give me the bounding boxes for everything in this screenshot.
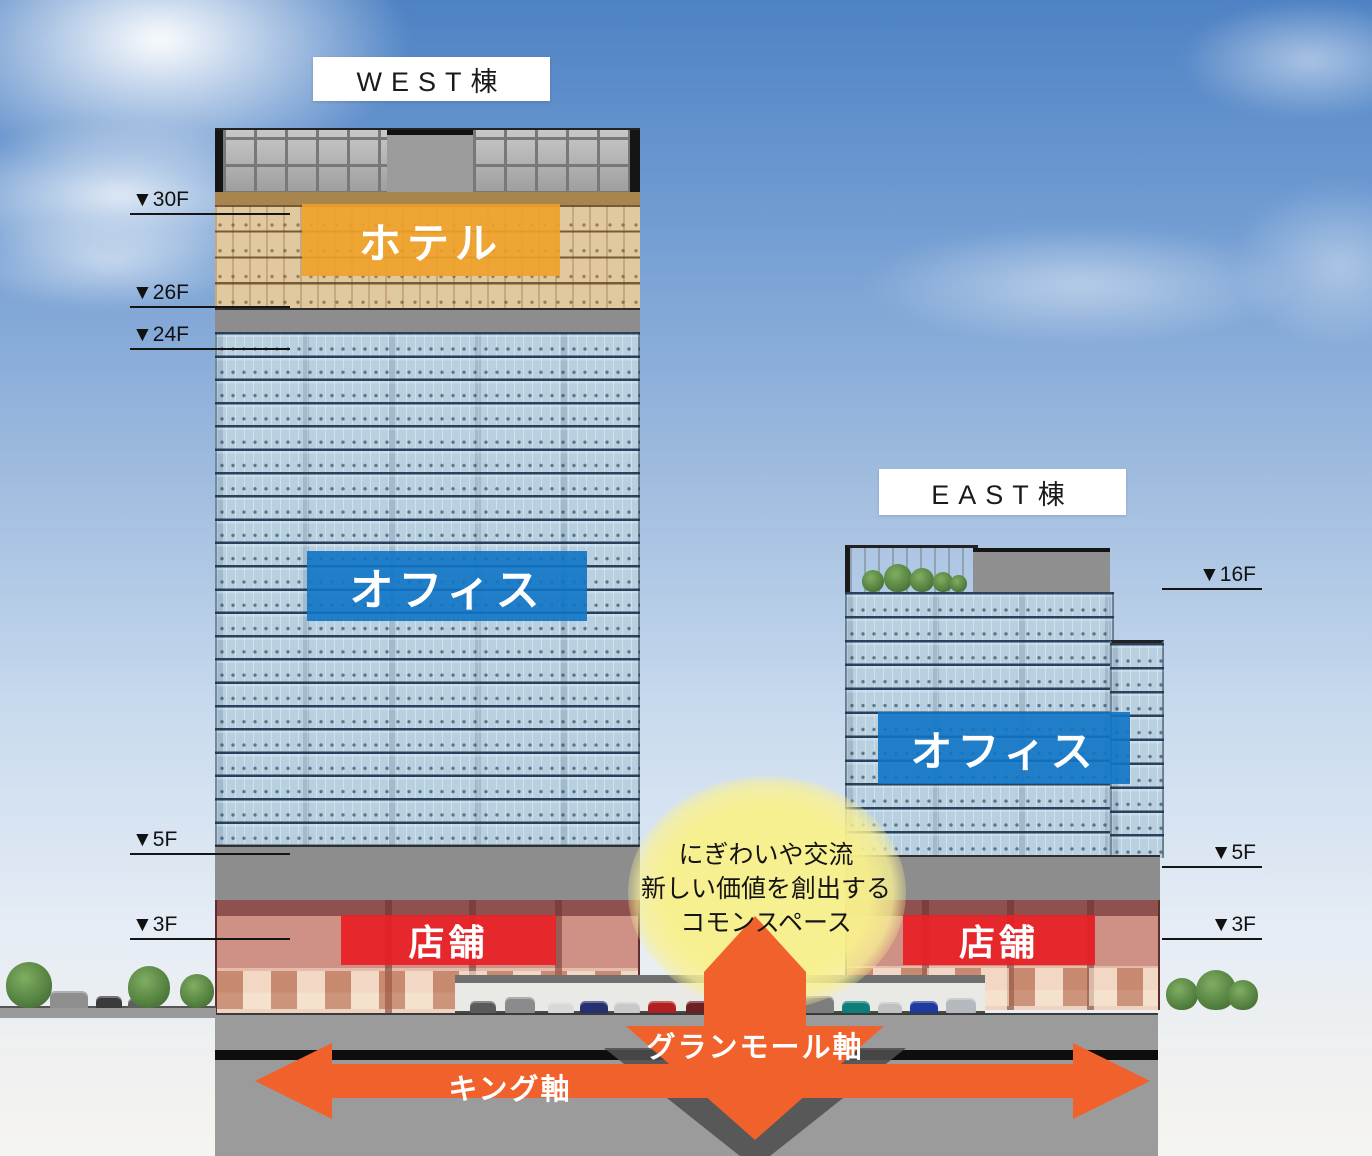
tree xyxy=(128,966,170,1008)
tree xyxy=(910,568,934,592)
west-mechanical-penthouse xyxy=(215,128,640,194)
cloud xyxy=(1230,180,1372,350)
floor-marker-west-30F: ▼30F xyxy=(130,187,290,215)
floor-marker-east-5F: ▼5F xyxy=(1162,840,1262,868)
king-axis-label: キング軸 xyxy=(400,1066,620,1108)
cloud xyxy=(1180,0,1372,120)
tree xyxy=(1166,978,1198,1010)
car xyxy=(470,1001,496,1013)
car xyxy=(910,1001,938,1013)
floor-marker-east-3F: ▼3F xyxy=(1162,912,1262,940)
east-building-title: EAST棟 xyxy=(879,469,1126,515)
east-retail-label: 店舗 xyxy=(903,915,1095,965)
car xyxy=(648,1001,676,1013)
tree xyxy=(6,962,52,1008)
tree xyxy=(950,575,967,592)
tree xyxy=(884,564,912,592)
car xyxy=(96,996,122,1008)
tree xyxy=(180,974,214,1008)
east-mechanical-block xyxy=(973,548,1110,596)
floor-marker-east-16F: ▼16F xyxy=(1162,562,1262,590)
floor-marker-west-24F: ▼24F xyxy=(130,322,290,350)
car xyxy=(580,1001,608,1013)
cross-section-diagram: キング軸 グランモール軸 にぎわいや交流 新しい価値を創出する コモンスペース … xyxy=(0,0,1372,1156)
east-office-label: オフィス xyxy=(878,712,1130,784)
car xyxy=(505,997,535,1013)
granmall-axis-label: グランモール軸 xyxy=(625,1024,885,1066)
floor-marker-west-5F: ▼5F xyxy=(130,827,290,855)
floor-marker-west-26F: ▼26F xyxy=(130,280,290,308)
commons-space-caption: にぎわいや交流 新しい価値を創出する コモンスペース xyxy=(596,838,936,940)
car xyxy=(878,1002,902,1013)
tree xyxy=(1228,980,1258,1010)
west-office-label: オフィス xyxy=(307,551,587,621)
car xyxy=(686,1001,712,1013)
commons-line-2: 新しい価値を創出する xyxy=(596,872,936,906)
west-building-title: WEST棟 xyxy=(313,57,550,101)
car xyxy=(842,1001,870,1013)
car xyxy=(548,1002,574,1013)
tree xyxy=(862,570,884,592)
car xyxy=(946,998,976,1013)
west-hotel-label: ホテル xyxy=(302,204,560,276)
car xyxy=(50,991,88,1008)
commons-line-1: にぎわいや交流 xyxy=(596,838,936,872)
cloud xyxy=(860,225,1300,345)
car xyxy=(614,1002,640,1013)
commons-line-3: コモンスペース xyxy=(596,906,936,940)
west-retail-label: 店舗 xyxy=(341,915,556,965)
floor-marker-west-3F: ▼3F xyxy=(130,912,290,940)
